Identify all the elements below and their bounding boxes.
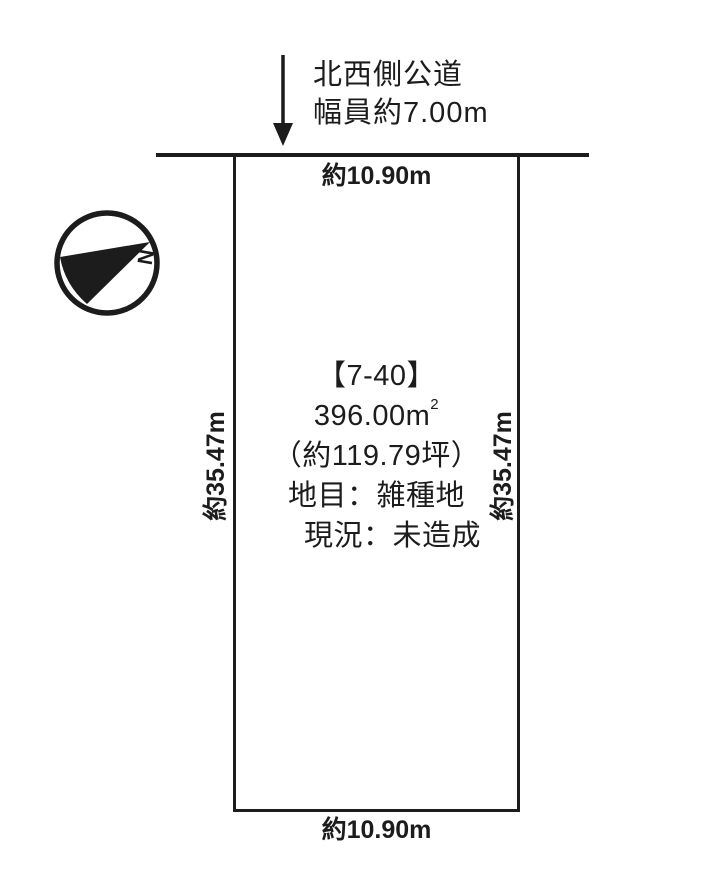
land-plot-diagram: 北西側公道 幅員約7.00m N 約10.90m 約35.47m 約35.47m… <box>0 0 712 888</box>
plot-frontage-label-top: 約10.90m <box>233 162 520 190</box>
plot-area-tsubo-label: （約119.79坪） <box>233 436 520 476</box>
compass-icon: N <box>52 207 162 319</box>
road-name-label: 北西側公道 <box>313 56 489 94</box>
plot-area-sqm-exponent: 2 <box>430 396 439 413</box>
compass-north-label: N <box>132 248 157 267</box>
plot-status-label: 現況：未造成 <box>249 516 536 556</box>
plot-land-category-label: 地目：雑種地 <box>233 476 520 516</box>
plot-area-sqm-value: 396.00m <box>314 400 430 432</box>
plot-area-sqm-label: 396.00m2 <box>233 396 520 436</box>
road-direction-arrow-icon <box>269 53 297 148</box>
road-description: 北西側公道 幅員約7.00m <box>313 56 489 132</box>
plot-frontage-label-bottom: 約10.90m <box>233 816 520 844</box>
plot-number-label: 【7-40】 <box>233 356 520 396</box>
plot-info-block: 【7-40】 396.00m2 （約119.79坪） 地目：雑種地 現況：未造成 <box>233 356 520 556</box>
road-width-label: 幅員約7.00m <box>313 94 489 132</box>
plot-depth-label-left: 約35.47m <box>203 411 229 521</box>
